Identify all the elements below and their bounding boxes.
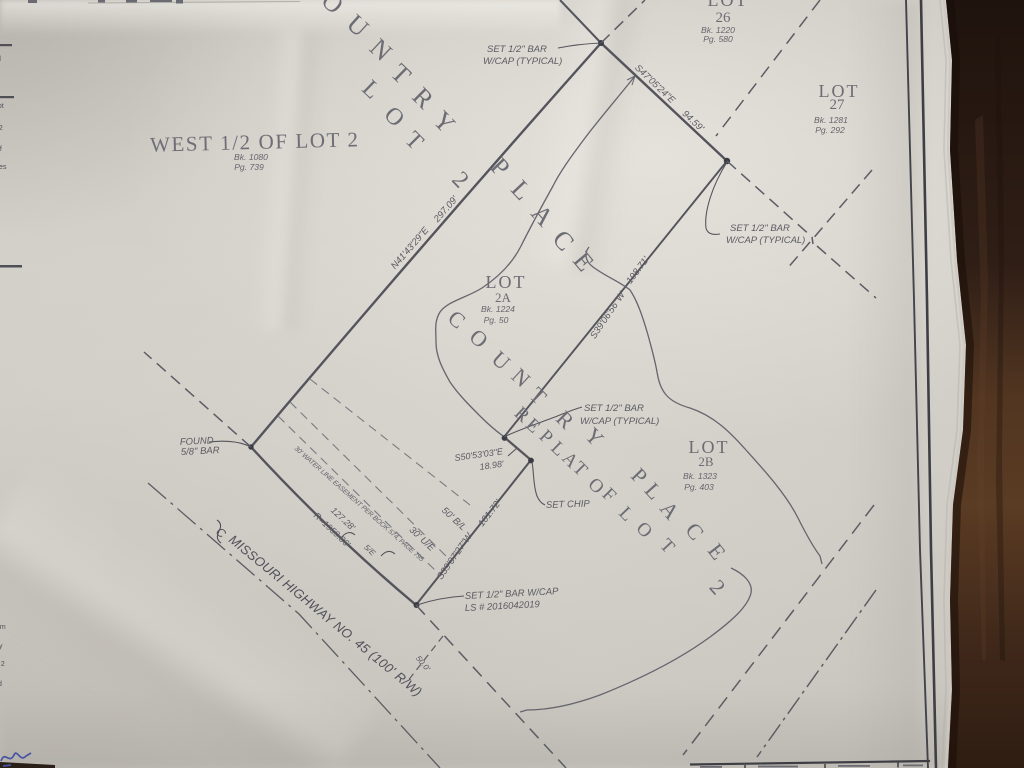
svg-text:U: U — [487, 346, 516, 375]
svg-text:T: T — [385, 58, 417, 90]
svg-text:2B: 2B — [698, 454, 714, 469]
svg-text:50.0': 50.0' — [414, 654, 432, 673]
svg-text:27: 27 — [830, 97, 846, 113]
svg-text:f 2: f 2 — [0, 125, 3, 132]
svg-text:C: C — [443, 305, 470, 334]
svg-text:N: N — [364, 33, 398, 67]
svg-text:O: O — [316, 0, 349, 20]
svg-text:Pg. 580: Pg. 580 — [703, 34, 733, 44]
svg-text:L: L — [357, 76, 386, 105]
svg-text:d: d — [0, 681, 2, 688]
svg-text:ty: ty — [0, 643, 3, 650]
svg-text:101.72': 101.72' — [476, 497, 504, 529]
svg-text:not: not — [0, 103, 4, 110]
svg-text:P: P — [626, 463, 652, 489]
svg-text:5/8" BAR: 5/8" BAR — [181, 445, 220, 458]
svg-text:18.98': 18.98' — [479, 459, 505, 472]
svg-text:2: 2 — [705, 575, 731, 600]
svg-text:SET 1/2" BAR: SET 1/2" BAR — [487, 44, 547, 55]
svg-text:R: R — [407, 82, 440, 115]
svg-text:O: O — [379, 102, 410, 133]
svg-text:um: um — [0, 624, 6, 631]
svg-text:LOT: LOT — [708, 0, 749, 10]
svg-text:E: E — [567, 246, 599, 277]
svg-text:Bk. 1080: Bk. 1080 — [234, 152, 268, 162]
svg-text:MISSOURI HIGHWAY NO. 45 (1: MISSOURI HIGHWAY NO. 45 (100' R/W) — [226, 532, 425, 700]
svg-text:SET 1/2" BAR: SET 1/2" BAR — [730, 223, 790, 234]
svg-text:ities: ities — [0, 164, 7, 171]
svg-text:Pg. 403: Pg. 403 — [684, 482, 714, 492]
svg-text:W/CAP (TYPICAL): W/CAP (TYPICAL) — [726, 235, 805, 246]
svg-text:5/E: 5/E — [362, 543, 377, 558]
svg-text:d: d — [0, 56, 1, 63]
svg-text:Pg. 292: Pg. 292 — [815, 125, 845, 135]
svg-text:W/CAP (TYPICAL): W/CAP (TYPICAL) — [580, 416, 659, 427]
svg-text:T: T — [655, 535, 679, 558]
svg-text:26: 26 — [716, 10, 732, 26]
svg-text:R: R — [551, 406, 579, 434]
svg-text:S39'07'27"W: S39'07'27"W — [435, 530, 476, 581]
svg-text:Pg. 50: Pg. 50 — [484, 315, 509, 325]
svg-text:L: L — [614, 503, 637, 526]
svg-text:S47'05'24"E: S47'05'24"E — [632, 63, 677, 107]
svg-text:W/CAP (TYPICAL): W/CAP (TYPICAL) — [483, 56, 562, 67]
svg-text:T: T — [400, 127, 429, 156]
svg-text:L: L — [505, 175, 537, 206]
svg-text:e 2: e 2 — [0, 661, 5, 668]
svg-text:2: 2 — [447, 167, 474, 194]
svg-text:Pg. 739: Pg. 739 — [234, 162, 264, 172]
svg-text:L: L — [640, 478, 668, 505]
svg-text:LOT: LOT — [486, 272, 527, 292]
svg-text:C: C — [680, 518, 709, 545]
svg-text:N41'43'29"E: N41'43'29"E — [389, 225, 432, 272]
svg-text:of: of — [0, 146, 2, 153]
svg-text:SET 1/2" BAR: SET 1/2" BAR — [584, 403, 644, 414]
svg-text:SET CHIP: SET CHIP — [546, 498, 591, 511]
svg-text:C: C — [547, 224, 580, 256]
svg-text:O: O — [632, 518, 657, 542]
svg-text:Bk. 1323: Bk. 1323 — [683, 471, 717, 481]
svg-text:30' WATER LINE EASEMENT PER BO: 30' WATER LINE EASEMENT PER BOOK 574, PA… — [293, 445, 425, 563]
svg-text:S39'06'56"W: S39'06'56"W — [588, 289, 628, 341]
svg-text:Y: Y — [427, 105, 461, 139]
svg-text:P: P — [485, 152, 516, 183]
svg-text:50' B/L: 50' B/L — [439, 505, 468, 533]
svg-text:2A: 2A — [495, 290, 512, 305]
svg-text:O: O — [465, 324, 493, 353]
svg-text:A: A — [655, 496, 684, 524]
svg-text:U: U — [341, 9, 375, 43]
svg-text:Bk. 1281: Bk. 1281 — [814, 115, 848, 125]
svg-text:E: E — [703, 538, 731, 564]
svg-text:N: N — [507, 363, 536, 392]
svg-text:Bk. 1224: Bk. 1224 — [481, 304, 515, 314]
